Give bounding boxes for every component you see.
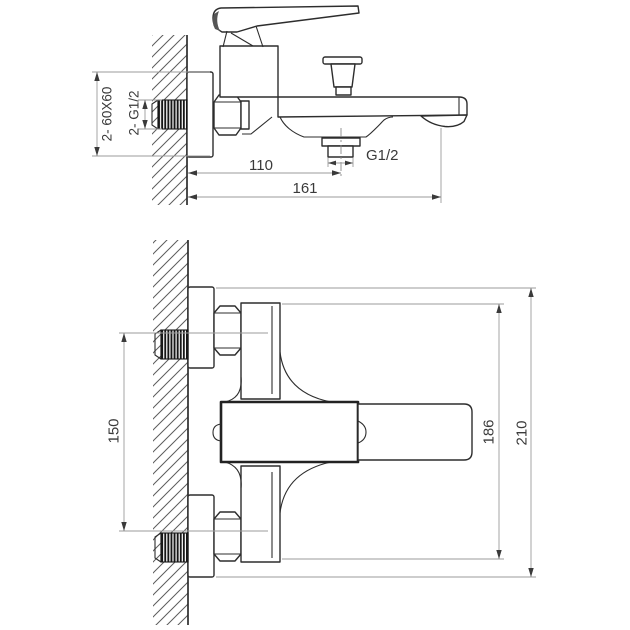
wall-plate-top	[188, 287, 214, 368]
arrow-up-icon	[121, 333, 126, 342]
lever-handle-side	[213, 6, 359, 32]
side-view: 2- 60X60 2- G1/2 G1/2 110	[92, 6, 467, 205]
arrow-left-icon	[188, 194, 197, 199]
arrow-left-icon	[188, 170, 197, 175]
wall-hatch-front	[153, 240, 188, 625]
mixer-body-side	[220, 46, 278, 97]
wall-plate-side	[187, 72, 213, 157]
hex-nut-side	[214, 95, 241, 135]
arrow-up-icon	[94, 72, 99, 81]
arrow-up-icon	[142, 100, 147, 109]
dim-label-161: 161	[292, 180, 317, 197]
arrow-up-icon	[528, 288, 533, 297]
technical-drawing: 2- 60X60 2- G1/2 G1/2 110	[0, 0, 630, 630]
dim-label-110: 110	[249, 157, 273, 174]
arrow-down-icon	[496, 550, 501, 559]
inlet-thread-top	[161, 330, 188, 359]
faucet-front	[155, 287, 472, 577]
wall-plate-bottom	[188, 495, 214, 577]
arrow-down-icon	[94, 147, 99, 156]
diverter-stem	[331, 64, 355, 87]
arrow-right-icon	[432, 194, 441, 199]
riser-column-top	[241, 303, 280, 399]
arrow-left-icon	[328, 161, 336, 166]
outlet-thread-stub	[328, 146, 353, 157]
dim-label-186: 186	[481, 419, 498, 444]
spout-lip	[421, 115, 467, 127]
arrow-down-icon	[142, 120, 147, 129]
arrow-right-icon	[345, 161, 353, 166]
lever-handle-front	[358, 404, 472, 460]
dim-label-outlet-thread: G1/2	[366, 147, 399, 164]
arrow-down-icon	[121, 522, 126, 531]
body-underside-curve	[280, 117, 393, 137]
diverter-knob	[323, 57, 362, 95]
dim-label-wall-plates: 2- 60X60	[100, 87, 115, 142]
riser-column-bottom	[241, 466, 280, 562]
inlet-thread-side	[158, 100, 187, 129]
arrow-down-icon	[528, 568, 533, 577]
arrow-up-icon	[496, 304, 501, 313]
dim-label-210: 210	[514, 420, 531, 445]
dim-label-150: 150	[106, 418, 123, 443]
mixer-body-front	[221, 402, 358, 462]
diverter-cap	[323, 57, 362, 64]
inlet-thread-bottom	[161, 533, 188, 562]
diverter-base	[336, 87, 351, 95]
faucet-side	[152, 6, 467, 157]
union-collar	[241, 101, 249, 129]
arrow-right-icon	[332, 170, 341, 175]
dim-label-inlet-connections: 2- G1/2	[127, 90, 142, 135]
spout-body	[278, 97, 467, 117]
front-view: 150 186 210	[106, 240, 537, 625]
